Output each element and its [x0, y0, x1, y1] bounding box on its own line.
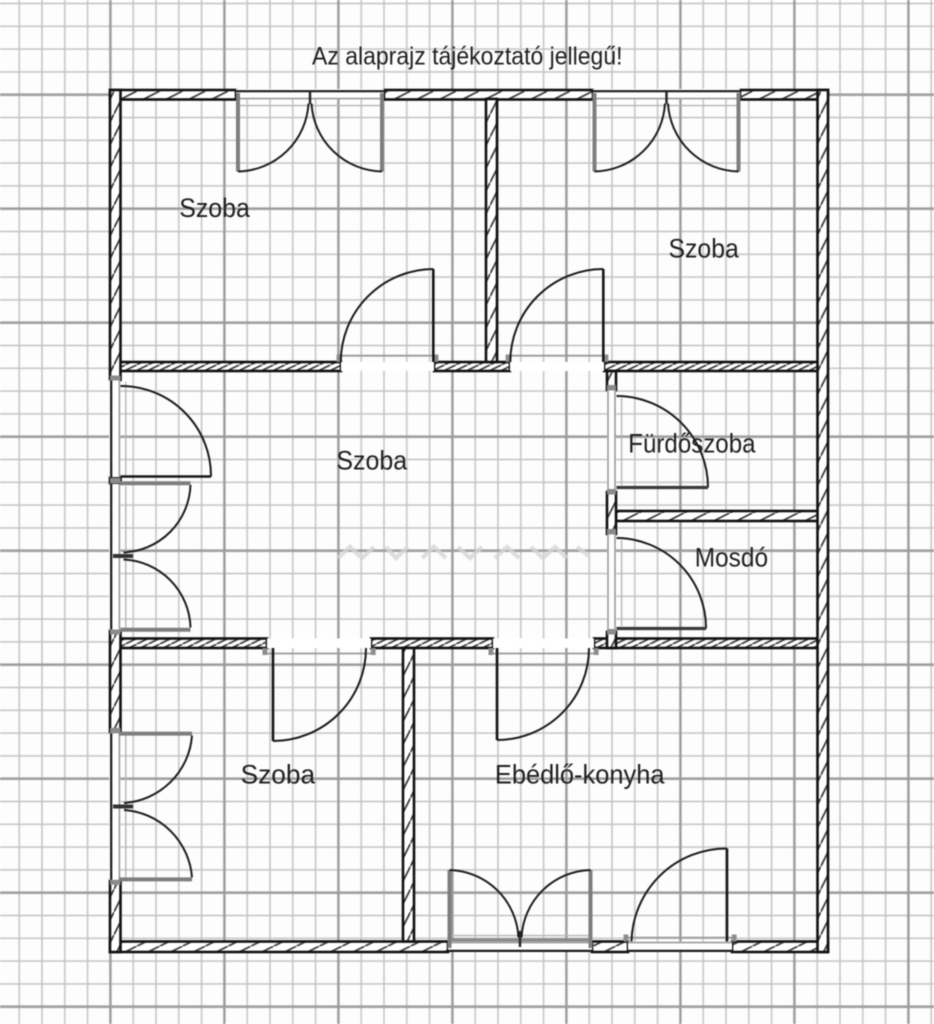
svg-text:Mosdó: Mosdó [695, 543, 768, 573]
svg-text:Szoba: Szoba [241, 760, 316, 790]
svg-text:Az alaprajz tájékoztató jelleg: Az alaprajz tájékoztató jellegű! [312, 43, 623, 71]
svg-text:Szoba: Szoba [669, 234, 740, 264]
svg-text:Ebédlő-konyha: Ebédlő-konyha [495, 760, 666, 790]
svg-text:Fürdőszoba: Fürdőszoba [628, 429, 756, 459]
svg-text:Szoba: Szoba [179, 193, 251, 223]
svg-text:Szoba: Szoba [336, 446, 408, 476]
